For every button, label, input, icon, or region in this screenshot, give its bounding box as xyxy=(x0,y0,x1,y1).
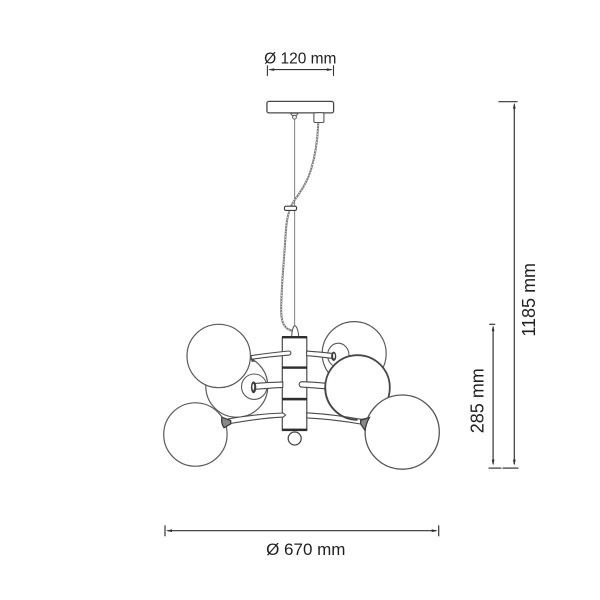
svg-text:Ø 670 mm: Ø 670 mm xyxy=(266,540,345,559)
svg-text:Ø 120 mm: Ø 120 mm xyxy=(264,50,336,67)
svg-text:285 mm: 285 mm xyxy=(468,368,488,433)
svg-text:1185 mm: 1185 mm xyxy=(519,263,539,337)
